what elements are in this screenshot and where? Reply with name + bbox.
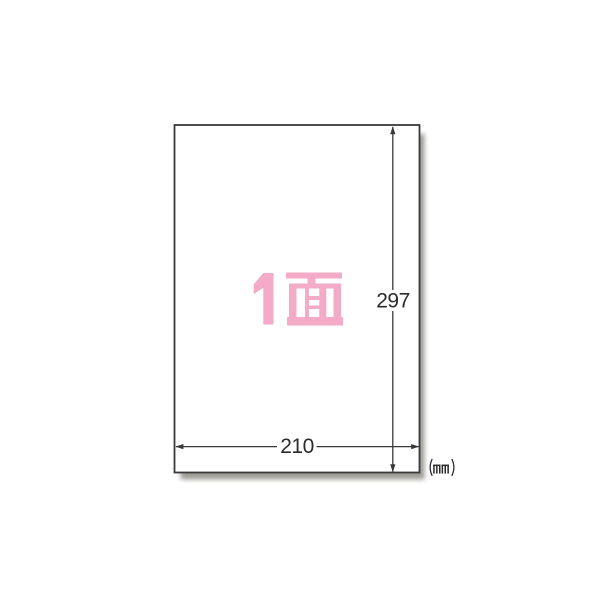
svg-text:210: 210 bbox=[280, 435, 314, 458]
svg-text:297: 297 bbox=[376, 290, 410, 313]
